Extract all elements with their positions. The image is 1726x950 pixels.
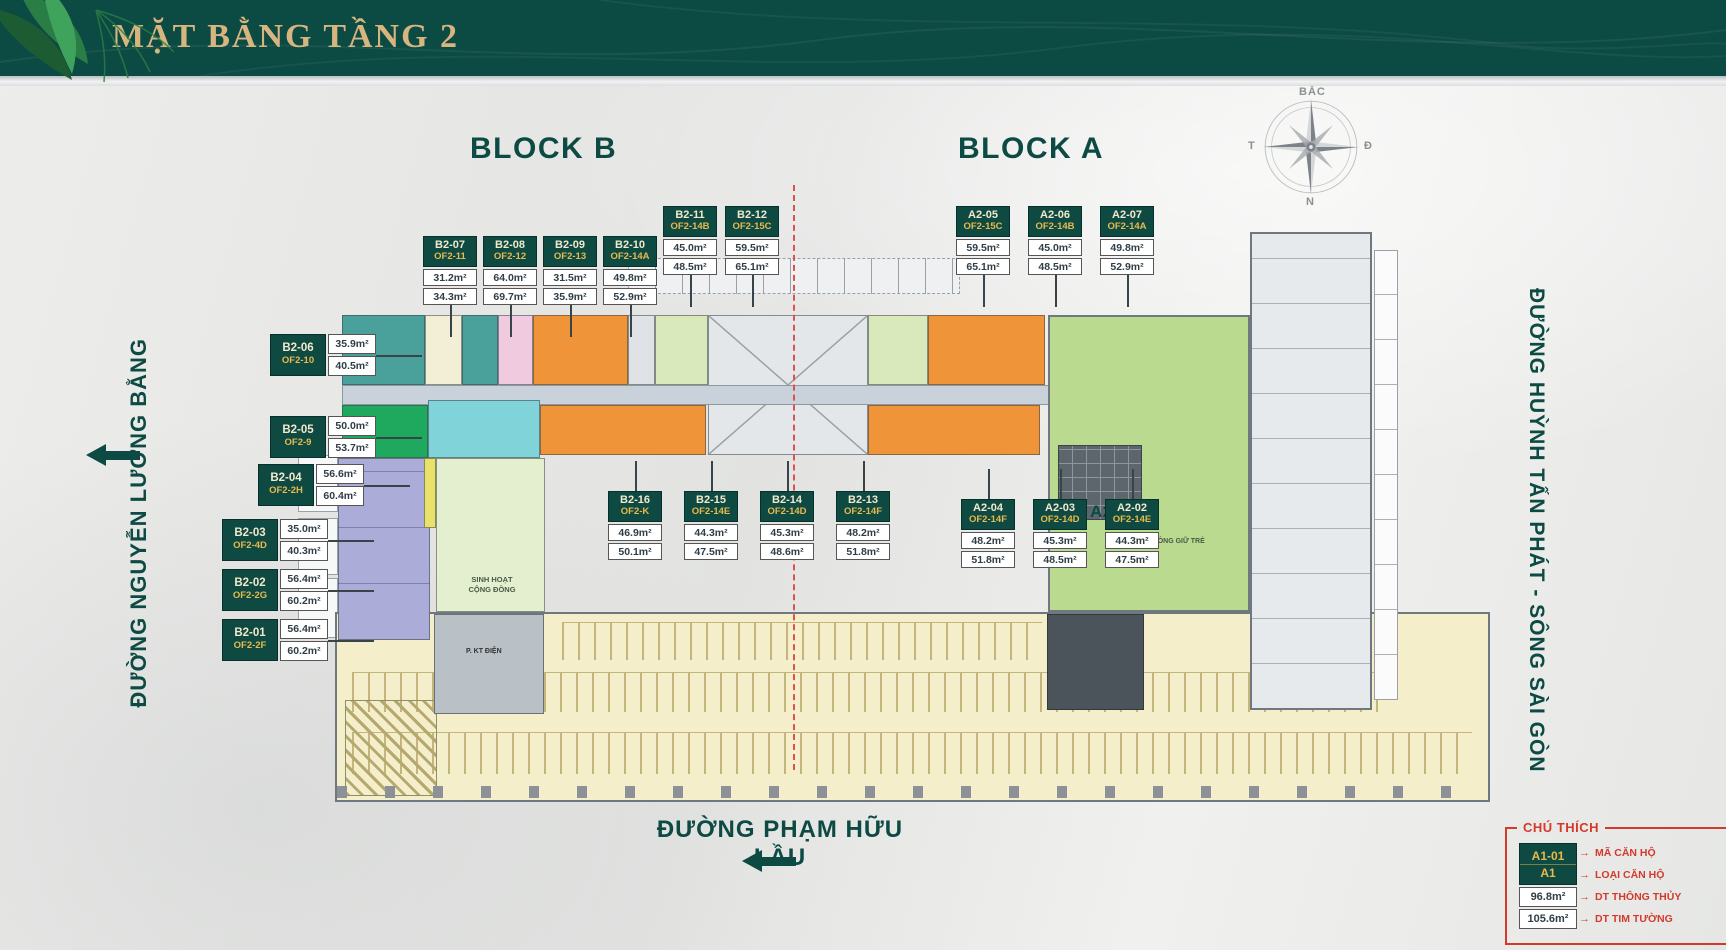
unit-areas: 59.5m² 65.1m² [956,239,1010,275]
unit-code: B2-06 [271,342,325,355]
legend-arrow-icon: → [1579,847,1590,859]
unit-areas: 31.2m² 34.3m² [423,269,477,305]
unit-type: OF2-10 [271,356,325,367]
unit-head: B2-03 OF2-4D [222,519,278,561]
column-row [337,786,1488,798]
unit-head: A2-02 OF2-14E [1105,499,1159,530]
legend-label-type: LOẠI CĂN HỘ [1595,869,1664,881]
unit-type: OF2-2H [259,486,313,497]
legend-row-area1: → DT THÔNG THỦY [1579,887,1726,907]
unit-code: B2-09 [544,239,596,252]
unit-area-gross: 40.3m² [280,541,328,561]
unit-areas: 45.0m² 48.5m² [663,239,717,275]
unit-code: A2-03 [1034,502,1086,515]
header-silver-strip [0,76,1726,86]
unit-type: OF2-14F [962,515,1014,526]
floor-plan-page: MẶT BẰNG TẦNG 2 BLOCK B BLOCK A [0,0,1726,950]
ramp-hatch [345,700,437,796]
unit-area-gross: 48.5m² [1033,551,1087,568]
unit-areas: 48.2m² 51.8m² [961,532,1015,568]
palm-leaf-decoration [0,0,180,86]
unit-type: OF2-14E [685,507,737,518]
unit-areas: 44.3m² 47.5m² [684,524,738,560]
unit-area-gross: 51.8m² [961,551,1015,568]
unit-label: B2-04 OF2-2H 56.6m² 60.4m² [258,464,364,506]
road-direction-arrow-bottom [742,850,796,872]
unit-label: B2-14 OF2-14D 45.3m² 48.6m² [760,491,814,560]
room-b2-10-b2-11 [533,315,628,385]
legend-sample-type: A1 [1520,865,1576,880]
unit-type: OF2-K [609,507,661,518]
unit-area-net: 46.9m² [608,524,662,541]
legend: CHÚ THÍCH A1-01 A1 → MÃ CĂN HỘ → LOẠI CĂ… [1505,827,1726,945]
unit-type: OF2-15C [726,222,778,233]
unit-label: A2-05 OF2-15C 59.5m² 65.1m² [956,206,1010,275]
unit-area-gross: 51.8m² [836,543,890,560]
unit-type: OF2-14B [1029,222,1081,233]
technical-room-label: P. KT ĐIỆN [466,648,502,655]
unit-code: B2-16 [609,494,661,507]
legend-sample-code: A1-01 [1520,849,1576,865]
unit-label: B2-03 OF2-4D 35.0m² 40.3m² [222,519,328,561]
unit-label: A2-03 OF2-14D 45.3m² 48.5m² [1033,499,1087,568]
unit-code: B2-15 [685,494,737,507]
unit-head: A2-06 OF2-14B [1028,206,1082,237]
unit-code: B2-10 [604,239,656,252]
unit-code: A2-07 [1101,209,1153,222]
unit-label: B2-10 OF2-14A 49.8m² 52.9m² [603,236,657,305]
unit-area-gross: 47.5m² [684,543,738,560]
unit-code: B2-11 [664,209,716,222]
unit-area-net: 56.4m² [280,619,328,639]
unit-area-net: 56.6m² [316,464,364,484]
unit-area-net: 44.3m² [684,524,738,541]
unit-head: B2-08 OF2-12 [483,236,537,267]
unit-area-net: 31.5m² [543,269,597,286]
unit-area-gross: 60.2m² [280,591,328,611]
unit-type: OF2-4D [223,541,277,552]
room-b2-12 [655,315,708,385]
unit-area-gross: 34.3m² [423,288,477,305]
unit-code: B2-04 [259,472,313,485]
legend-arrow-icon: → [1579,913,1590,925]
unit-code: B2-02 [223,577,277,590]
unit-label: B2-02 OF2-2G 56.4m² 60.2m² [222,569,328,611]
unit-type: OF2-12 [484,252,536,263]
unit-label: B2-06 OF2-10 35.9m² 40.5m² [270,334,376,376]
unit-head: B2-05 OF2-9 [270,416,326,458]
unit-type: OF2-11 [424,252,476,263]
unit-type: OF2-14A [1101,222,1153,233]
unit-code: B2-05 [271,424,325,437]
legend-title: CHÚ THÍCH [1517,820,1605,835]
unit-area-net: 64.0m² [483,269,537,286]
unit-area-gross: 50.1m² [608,543,662,560]
unit-areas: 45.0m² 48.5m² [1028,239,1082,275]
unit-label: B2-07 OF2-11 31.2m² 34.3m² [423,236,477,305]
compass-rose: BẮC T Đ N [1256,92,1366,202]
unit-areas: 31.5m² 35.9m² [543,269,597,305]
unit-code: A2-05 [957,209,1009,222]
legend-label-area2: DT TIM TƯỜNG [1595,913,1673,925]
unit-head: B2-15 OF2-14E [684,491,738,522]
unit-label: B2-16 OF2-K 46.9m² 50.1m² [608,491,662,560]
unit-code: B2-12 [726,209,778,222]
unit-area-net: 31.2m² [423,269,477,286]
unit-head: B2-14 OF2-14D [760,491,814,522]
unit-area-net: 44.3m² [1105,532,1159,549]
unit-code: B2-01 [223,627,277,640]
unit-code: A2-02 [1106,502,1158,515]
unit-area-gross: 52.9m² [603,288,657,305]
unit-code: B2-14 [761,494,813,507]
unit-head: B2-07 OF2-11 [423,236,477,267]
road-direction-arrow-left [86,444,140,466]
parking-stalls [352,732,1472,774]
unit-label: B2-09 OF2-13 31.5m² 35.9m² [543,236,597,305]
unit-head: B2-09 OF2-13 [543,236,597,267]
room-a2-06-a2-07 [928,315,1045,385]
unit-label: B2-13 OF2-14F 48.2m² 51.8m² [836,491,890,560]
unit-type: OF2-14D [761,507,813,518]
unit-area-net: 45.0m² [663,239,717,256]
unit-type: OF2-14E [1106,515,1158,526]
legend-grid: A1-01 A1 → MÃ CĂN HỘ → LOẠI CĂN HỘ 96.8m… [1519,843,1726,929]
unit-areas: 49.8m² 52.9m² [1100,239,1154,275]
unit-area-gross: 60.2m² [280,641,328,661]
unit-type: OF2-9 [271,438,325,449]
unit-area-net: 48.2m² [836,524,890,541]
legend-sample-area2: 105.6m² [1519,909,1577,929]
unit-area-gross: 48.5m² [1028,258,1082,275]
room-a2-02-to-a2-04 [868,405,1040,455]
legend-label-code: MÃ CĂN HỘ [1595,847,1656,859]
unit-area-net: 59.5m² [956,239,1010,256]
legend-arrow-icon: → [1579,891,1590,903]
unit-areas: 45.3m² 48.6m² [760,524,814,560]
unit-code: B2-13 [837,494,889,507]
unit-area-net: 45.3m² [760,524,814,541]
unit-areas: 49.8m² 52.9m² [603,269,657,305]
unit-area-gross: 60.4m² [316,486,364,506]
arrow-tail [106,451,140,460]
block-divider-dashed-line [793,185,795,770]
compass-south-label: N [1306,196,1314,208]
unit-head: B2-06 OF2-10 [270,334,326,376]
unit-head: B2-01 OF2-2F [222,619,278,661]
unit-label: B2-05 OF2-9 50.0m² 53.7m² [270,416,376,458]
unit-area-net: 35.9m² [328,334,376,354]
east-balconies [1374,250,1398,700]
arrow-head-icon [86,444,106,466]
unit-area-gross: 69.7m² [483,288,537,305]
unit-area-gross: 35.9m² [543,288,597,305]
arrow-head-icon [742,850,762,872]
room-b2-08 [462,315,498,385]
unit-area-gross: 47.5m² [1105,551,1159,568]
unit-head: B2-16 OF2-K [608,491,662,522]
compass-icon [1256,92,1366,202]
unit-code: A2-04 [962,502,1014,515]
legend-row-code: → MÃ CĂN HỘ [1579,843,1726,863]
legend-sample-unit: A1-01 A1 [1519,843,1577,885]
unit-label: B2-12 OF2-15C 59.5m² 65.1m² [725,206,779,275]
unit-code: A2-06 [1029,209,1081,222]
unit-type: OF2-13 [544,252,596,263]
unit-head: A2-05 OF2-15C [956,206,1010,237]
unit-areas: 48.2m² 51.8m² [836,524,890,560]
east-rooms-strip [1250,232,1372,710]
unit-area-net: 45.3m² [1033,532,1087,549]
unit-head: B2-04 OF2-2H [258,464,314,506]
unit-type: OF2-2F [223,641,277,652]
compass-east-label: Đ [1364,140,1372,152]
unit-area-gross: 53.7m² [328,438,376,458]
unit-head: B2-12 OF2-15C [725,206,779,237]
technical-core-a [1047,614,1144,710]
legend-row-type: → LOẠI CĂN HỘ [1579,865,1726,885]
unit-area-net: 49.8m² [603,269,657,286]
legend-label-area1: DT THÔNG THỦY [1595,891,1681,903]
community-room-label: SINH HOẠT CỘNG ĐỒNG [462,575,522,595]
road-label-right: ĐƯỜNG HUỲNH TẤN PHÁT - SÔNG SÀI GÒN [1524,288,1548,773]
unit-area-gross: 40.5m² [328,356,376,376]
unit-areas: 59.5m² 65.1m² [725,239,779,275]
unit-label: A2-06 OF2-14B 45.0m² 48.5m² [1028,206,1082,275]
unit-area-net: 35.0m² [280,519,328,539]
unit-type: OF2-14F [837,507,889,518]
legend-row-area2: → DT TIM TƯỜNG [1579,909,1726,929]
unit-area-gross: 48.5m² [663,258,717,275]
unit-area-net: 45.0m² [1028,239,1082,256]
unit-area-net: 49.8m² [1100,239,1154,256]
road-label-left: ĐƯỜNG NGUYỄN LƯƠNG BẰNG [126,338,152,708]
legend-arrow-icon: → [1579,869,1590,881]
unit-head: A2-03 OF2-14D [1033,499,1087,530]
unit-areas: 64.0m² 69.7m² [483,269,537,305]
unit-label: A2-07 OF2-14A 49.8m² 52.9m² [1100,206,1154,275]
unit-label: B2-01 OF2-2F 56.4m² 60.2m² [222,619,328,661]
unit-area-net: 50.0m² [328,416,376,436]
unit-type: OF2-14B [664,222,716,233]
unit-area-gross: 65.1m² [725,258,779,275]
compass-north-label: BẮC [1299,86,1326,98]
unit-label: A2-04 OF2-14F 48.2m² 51.8m² [961,499,1015,568]
room-b2-13-to-b2-16 [540,405,706,455]
room-b2-07 [425,315,462,385]
room-yellow-service [424,458,436,528]
unit-type: OF2-14D [1034,515,1086,526]
compass-west-label: T [1248,140,1255,152]
unit-label: B2-08 OF2-12 64.0m² 69.7m² [483,236,537,305]
block-b-heading: BLOCK B [470,132,617,166]
unit-code: B2-03 [223,527,277,540]
unit-label: B2-15 OF2-14E 44.3m² 47.5m² [684,491,738,560]
unit-head: B2-10 OF2-14A [603,236,657,267]
unit-area-gross: 48.6m² [760,543,814,560]
unit-area-net: 59.5m² [725,239,779,256]
room-a2-05 [868,315,928,385]
room-meeting [428,400,540,458]
unit-areas: 46.9m² 50.1m² [608,524,662,560]
unit-head: B2-02 OF2-2G [222,569,278,611]
unit-code: B2-07 [424,239,476,252]
unit-label: A2-02 OF2-14E 44.3m² 47.5m² [1105,499,1159,568]
unit-head: B2-11 OF2-14B [663,206,717,237]
unit-areas: 44.3m² 47.5m² [1105,532,1159,568]
legend-sample-area1: 96.8m² [1519,887,1577,907]
parking-stalls [562,622,1042,660]
unit-type: OF2-14A [604,252,656,263]
unit-code: B2-08 [484,239,536,252]
unit-area-net: 48.2m² [961,532,1015,549]
room-b2-09 [498,315,533,385]
unit-label: B2-11 OF2-14B 45.0m² 48.5m² [663,206,717,275]
arrow-tail [762,857,796,866]
unit-area-gross: 52.9m² [1100,258,1154,275]
unit-area-net: 56.4m² [280,569,328,589]
unit-head: B2-13 OF2-14F [836,491,890,522]
unit-type: OF2-15C [957,222,1009,233]
block-a-heading: BLOCK A [958,132,1104,166]
unit-head: A2-07 OF2-14A [1100,206,1154,237]
technical-core-b [434,614,544,714]
room-service [628,315,655,385]
unit-type: OF2-2G [223,591,277,602]
unit-areas: 45.3m² 48.5m² [1033,532,1087,568]
unit-area-gross: 65.1m² [956,258,1010,275]
unit-head: A2-04 OF2-14F [961,499,1015,530]
